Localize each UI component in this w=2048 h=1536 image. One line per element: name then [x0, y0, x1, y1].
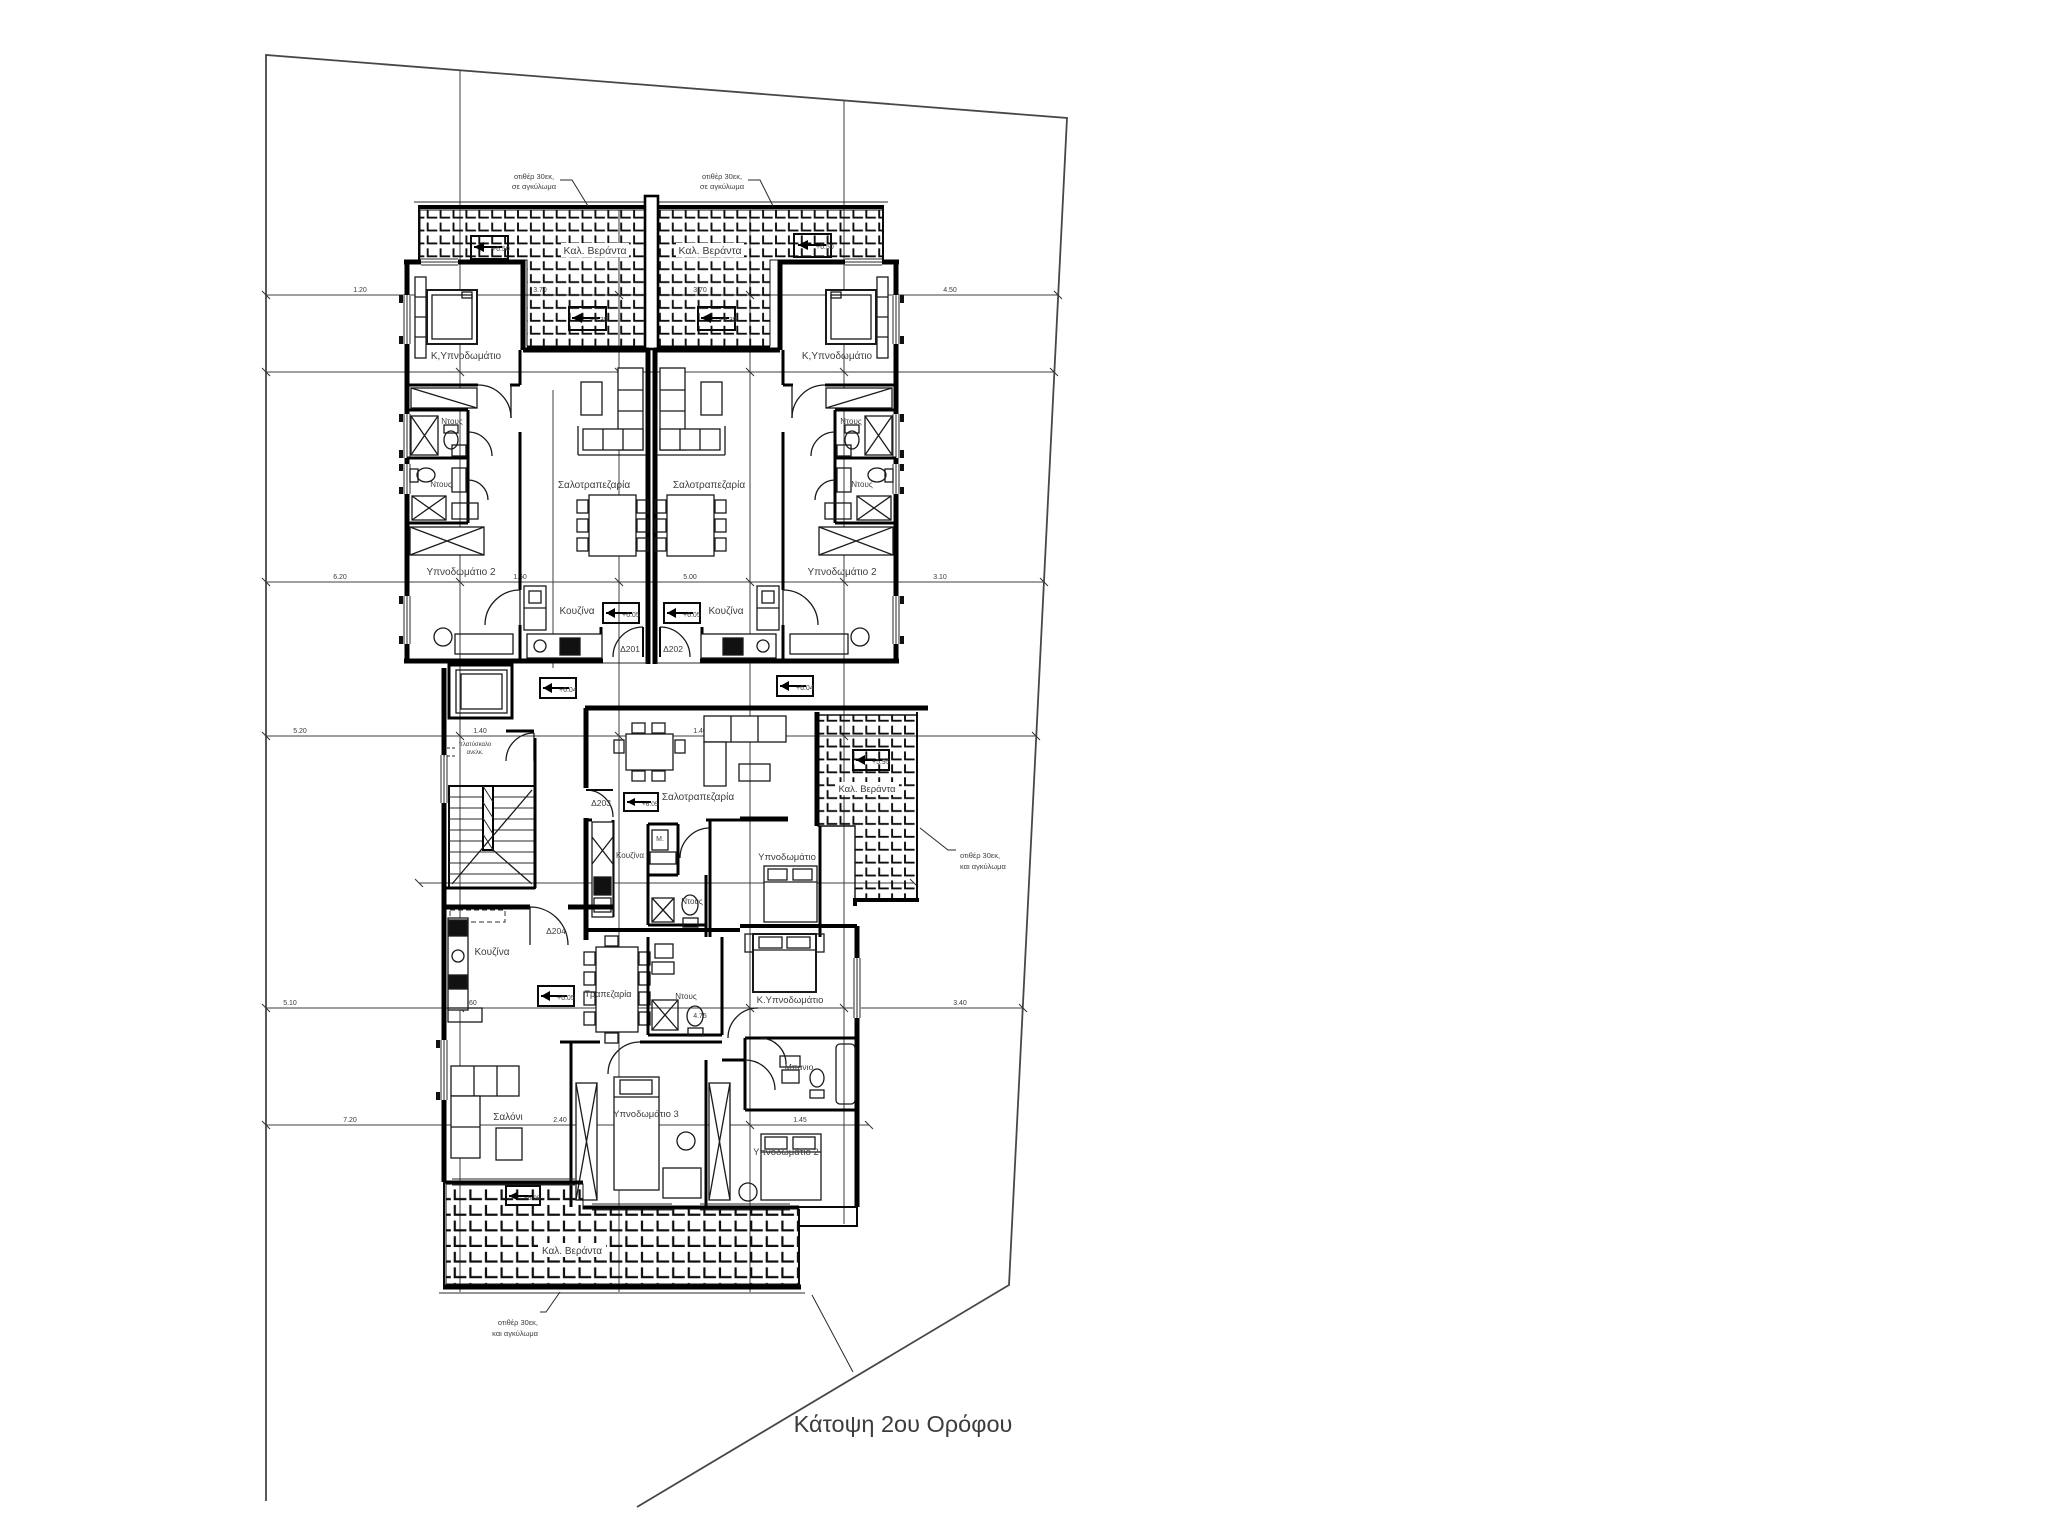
- svg-text:Σαλοτραπεζαρία: Σαλοτραπεζαρία: [662, 791, 734, 803]
- svg-text:Δ204: Δ204: [546, 926, 566, 936]
- svg-text:+6.05: +6.05: [683, 612, 701, 619]
- svg-text:Ντους: Ντους: [430, 480, 452, 489]
- svg-text:Κ,Υπνοδωμάτιο: Κ,Υπνοδωμάτιο: [802, 350, 873, 362]
- svg-text:5.20: 5.20: [293, 728, 307, 735]
- svg-text:Μ.: Μ.: [656, 836, 664, 843]
- svg-text:Καλ. Βεράντα: Καλ. Βεράντα: [838, 784, 896, 795]
- svg-text:6.20: 6.20: [333, 574, 347, 581]
- svg-text:1.45: 1.45: [793, 1117, 807, 1124]
- svg-text:Σαλοτραπεζαρία: Σαλοτραπεζαρία: [558, 479, 630, 491]
- svg-text:οτιθέρ 30εκ,: οτιθέρ 30εκ,: [960, 851, 1000, 860]
- svg-text:πλατύσκαλο: πλατύσκαλο: [459, 742, 492, 748]
- svg-text:7.20: 7.20: [343, 1117, 357, 1124]
- svg-text:ανελκ.: ανελκ.: [467, 750, 484, 756]
- svg-text:4.75: 4.75: [693, 1013, 707, 1020]
- svg-text:Κουζίνα: Κουζίνα: [475, 946, 510, 958]
- svg-text:Ντους: Ντους: [441, 417, 463, 426]
- svg-text:+6.05: +6.05: [642, 801, 659, 808]
- svg-text:Σαλοτραπεζαρία: Σαλοτραπεζαρία: [673, 479, 745, 491]
- svg-text:+6.04: +6.04: [796, 685, 814, 692]
- svg-text:Ντους: Ντους: [675, 992, 697, 1001]
- svg-text:+5.95: +5.95: [872, 759, 890, 766]
- svg-text:Δ203: Δ203: [591, 798, 611, 808]
- svg-text:Κουζίνα: Κουζίνα: [709, 605, 744, 617]
- svg-text:+6.35: +6.35: [719, 317, 737, 324]
- svg-text:Καλ. Βεράντα: Καλ. Βεράντα: [563, 245, 626, 257]
- svg-text:σε αγκύλωμα: σε αγκύλωμα: [700, 182, 745, 191]
- svg-text:+6.50: +6.50: [816, 244, 834, 251]
- svg-text:Υπνοδωμάτιο 2: Υπνοδωμάτιο 2: [753, 1147, 819, 1158]
- svg-text:Ντους: Ντους: [851, 480, 873, 489]
- svg-text:1.20: 1.20: [353, 287, 367, 294]
- svg-text:οτιθέρ 30εκ,: οτιθέρ 30εκ,: [514, 172, 554, 181]
- svg-text:5.00: 5.00: [683, 574, 697, 581]
- svg-text:1.40: 1.40: [473, 728, 487, 735]
- svg-text:Καλ. Βεράντα: Καλ. Βεράντα: [542, 1245, 602, 1257]
- svg-text:4.50: 4.50: [943, 287, 957, 294]
- svg-text:και αγκύλωμα: και αγκύλωμα: [960, 862, 1006, 871]
- svg-text:σε αγκύλωμα: σε αγκύλωμα: [512, 182, 557, 191]
- svg-text:Κουζίνα: Κουζίνα: [560, 605, 595, 617]
- svg-text:+5.95: +5.95: [524, 1195, 541, 1202]
- svg-text:3.10: 3.10: [933, 574, 947, 581]
- svg-text:Δ202: Δ202: [663, 644, 683, 654]
- svg-text:οτιθέρ 30εκ,: οτιθέρ 30εκ,: [702, 172, 742, 181]
- svg-text:Ντους: Ντους: [840, 417, 862, 426]
- svg-text:+6.50: +6.50: [492, 246, 510, 253]
- svg-text:Κ.Υπνοδωμάτιο: Κ.Υπνοδωμάτιο: [757, 995, 824, 1006]
- svg-text:Υπνοδωμάτιο: Υπνοδωμάτιο: [758, 852, 816, 863]
- svg-text:Υπνοδωμάτιο 2: Υπνοδωμάτιο 2: [807, 566, 877, 578]
- svg-text:+6.05: +6.05: [622, 612, 640, 619]
- svg-text:Σαλόνι: Σαλόνι: [493, 1111, 523, 1123]
- svg-text:Υπνοδωμάτιο 2: Υπνοδωμάτιο 2: [426, 566, 496, 578]
- svg-text:Κ,Υπνοδωμάτιο: Κ,Υπνοδωμάτιο: [431, 350, 502, 362]
- svg-text:οτιθέρ 30εκ,: οτιθέρ 30εκ,: [498, 1318, 538, 1327]
- svg-text:Τραπεζαρία: Τραπεζαρία: [585, 989, 632, 999]
- svg-text:Μπάνιο: Μπάνιο: [785, 1062, 814, 1072]
- svg-text:+6.04: +6.04: [559, 687, 577, 694]
- svg-text:+6.35: +6.35: [590, 317, 608, 324]
- svg-text:Κουζίνα: Κουζίνα: [616, 851, 644, 860]
- svg-text:Καλ. Βεράντα: Καλ. Βεράντα: [678, 245, 741, 257]
- svg-text:2.40: 2.40: [553, 1117, 567, 1124]
- svg-text:+6.05: +6.05: [557, 995, 575, 1002]
- svg-text:5.10: 5.10: [283, 1000, 297, 1007]
- svg-text:Δ201: Δ201: [620, 644, 640, 654]
- svg-text:Ντους: Ντους: [681, 897, 703, 906]
- svg-text:και αγκύλωμα: και αγκύλωμα: [492, 1329, 538, 1338]
- svg-text:3.40: 3.40: [953, 1000, 967, 1007]
- svg-text:Κάτοψη 2ου Ορόφου: Κάτοψη 2ου Ορόφου: [794, 1411, 1013, 1437]
- svg-text:Υπνοδωμάτιο 3: Υπνοδωμάτιο 3: [613, 1109, 679, 1120]
